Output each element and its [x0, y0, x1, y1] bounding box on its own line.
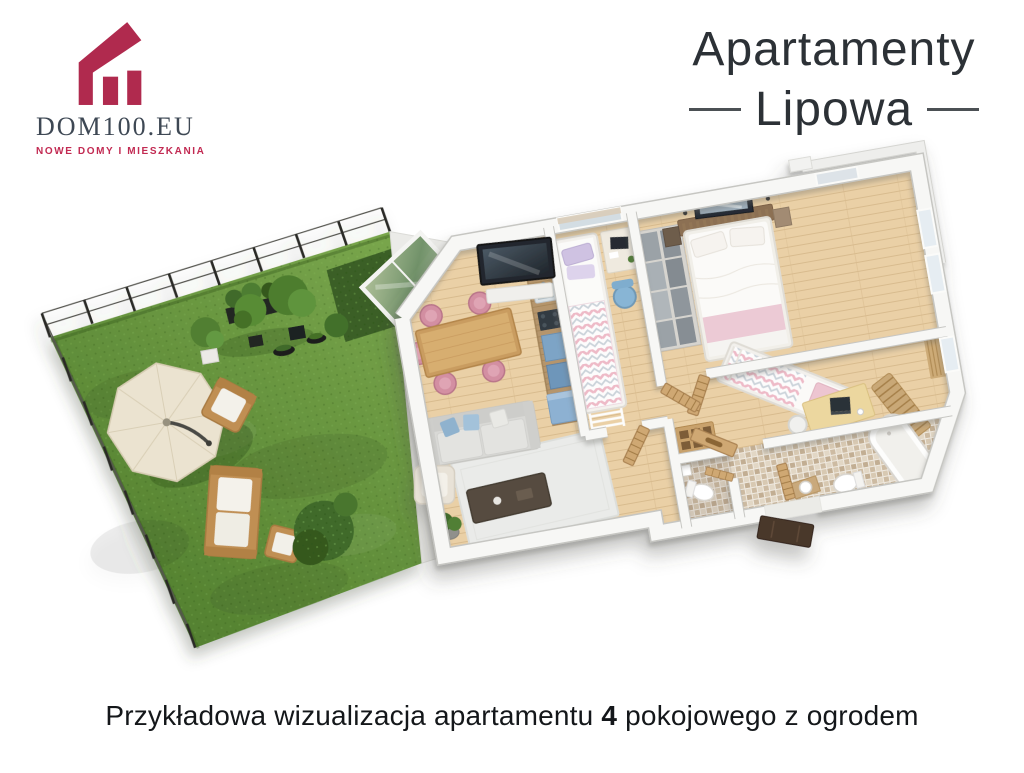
entrance-door — [757, 516, 814, 548]
bedside-table — [663, 226, 682, 247]
caption: Przykładowa wizualizacja apartamentu 4 p… — [0, 700, 1024, 732]
floorplan-illustration — [0, 0, 1024, 768]
garden-sofa — [204, 465, 262, 558]
caption-room-count: 4 — [601, 700, 617, 731]
apartment — [367, 137, 985, 613]
bedside-table — [773, 207, 792, 228]
caption-prefix: Przykładowa wizualizacja apartamentu — [105, 700, 601, 731]
tv — [477, 237, 555, 285]
caption-suffix: pokojowego z ogrodem — [617, 700, 919, 731]
